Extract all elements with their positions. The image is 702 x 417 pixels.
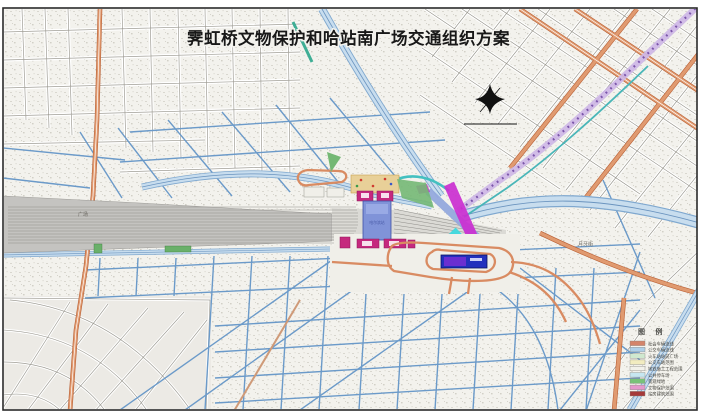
legend-swatch [630, 391, 645, 396]
green-strip [165, 246, 191, 252]
map-title-text: 霁虹桥文物保护和哈站南广场交通组织方案 [186, 28, 510, 48]
plaza-marker [384, 178, 387, 181]
legend-label: 公交车辆流线 [648, 347, 674, 354]
legend-label: 景观绿地 [648, 378, 666, 385]
legend-swatch [630, 347, 645, 352]
concourse-detail [381, 193, 389, 198]
concourse-detail [362, 241, 372, 246]
legend-swatch [630, 379, 645, 384]
sw-fan-streets [3, 296, 211, 412]
bus-terminal-inner [444, 257, 466, 266]
plaza-marker [356, 185, 359, 188]
legend-label: 火车站站前广场 [648, 353, 679, 360]
legend-swatch [630, 354, 645, 359]
legend-label: 公共停车场 [648, 372, 670, 379]
rail-yard-label: 广场 [78, 211, 88, 218]
legend-title: 图 例 [638, 327, 666, 336]
legend-label: 站房建筑范围 [648, 391, 674, 398]
station-hall-label: 哈尔滨站 [369, 220, 384, 225]
legend-label: 社会车辆流线 [648, 340, 674, 347]
plan-map-svg: 广场 [0, 0, 702, 417]
plaza-marker [390, 183, 393, 186]
map-title: 霁虹桥文物保护和哈站南广场交通组织方案 霁虹桥文物保护和哈站南广场交通组织方案 [186, 28, 510, 48]
legend-swatch [630, 360, 645, 365]
street-name-label: 月牙街 [578, 241, 593, 248]
legend-swatch [630, 385, 645, 390]
concourse-detail [361, 193, 369, 198]
bus-terminal-detail [470, 258, 482, 261]
legend-swatch [630, 373, 645, 378]
green-block [94, 244, 102, 253]
legend-swatch [630, 366, 645, 371]
station-building-west [304, 187, 324, 197]
legend-swatch [630, 341, 645, 346]
south-concourse [340, 237, 350, 248]
plaza-marker [372, 185, 375, 188]
plan-map-page: 广场 [0, 0, 702, 417]
station-building-west [327, 188, 344, 197]
legend-label: 公交车站范围 [648, 359, 674, 366]
south-concourse [408, 240, 415, 248]
legend-label: 地铁施工工程范围 [648, 366, 682, 373]
legend-label: 文物保护范围 [648, 384, 674, 391]
map-content: 广场 [0, 0, 702, 417]
station-hall-detail [366, 204, 388, 214]
plaza-marker [360, 179, 363, 182]
